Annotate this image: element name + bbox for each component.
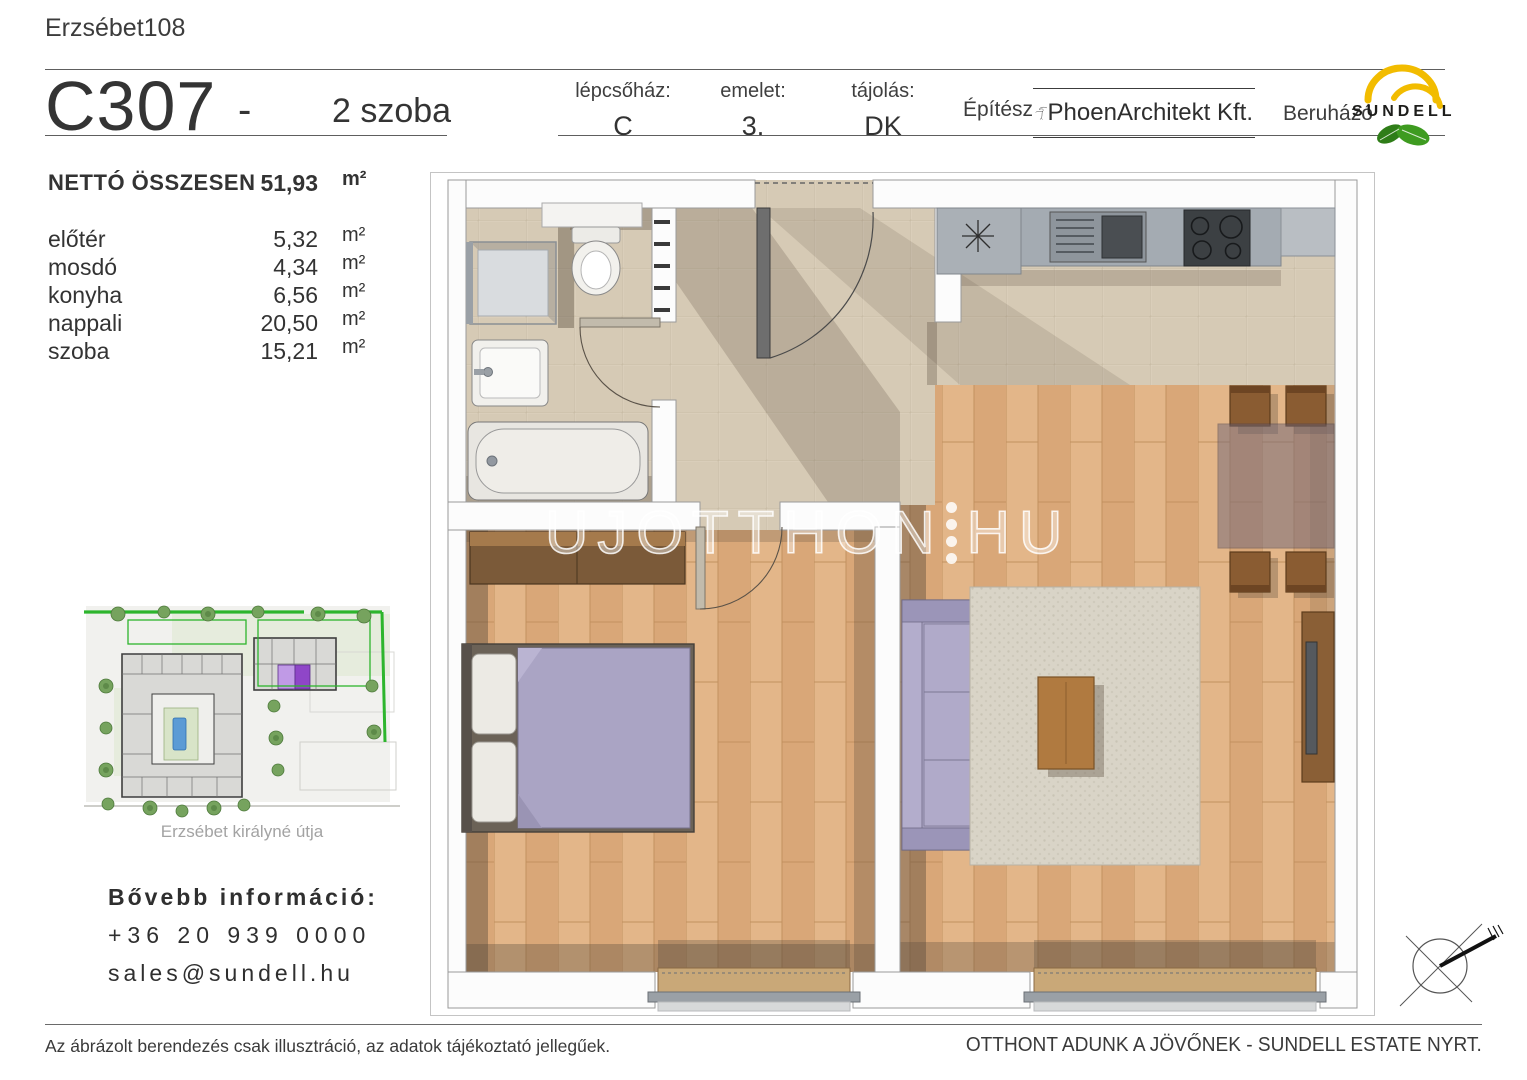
title-underline xyxy=(45,135,447,136)
phoenix-bird-icon xyxy=(1035,90,1048,136)
total-area-value: 51,93 xyxy=(180,170,318,197)
room-value: 6,56 xyxy=(180,282,318,309)
pillow xyxy=(472,742,516,822)
watermark-right: HU xyxy=(967,498,1072,567)
room-unit: m² xyxy=(342,308,365,331)
room-value: 4,34 xyxy=(180,254,318,281)
total-area-unit: m² xyxy=(342,168,366,191)
dining-table xyxy=(1218,424,1334,548)
disclaimer-text: Az ábrázolt berendezés csak illusztráció… xyxy=(45,1036,610,1057)
footer-slogan: OTTHONT ADUNK A JÖVŐNEK - SUNDELL ESTATE… xyxy=(966,1033,1482,1057)
staircase-label: lépcsőház: xyxy=(557,80,689,103)
field-staircase: lépcsőház: C xyxy=(557,80,689,142)
cooktop xyxy=(1184,210,1250,266)
room-unit: m² xyxy=(342,280,365,303)
orientation-value: DK xyxy=(817,111,949,142)
kitchen-counter xyxy=(937,208,1335,274)
kitchen-sink xyxy=(1102,216,1142,258)
floor-label: emelet: xyxy=(687,80,819,103)
unit-separator: - xyxy=(238,88,251,133)
developer-logo: SUNDELL xyxy=(1352,60,1452,152)
room-name: előtér xyxy=(48,226,106,253)
bedroom-window xyxy=(648,968,860,1011)
room-value: 15,21 xyxy=(180,338,318,365)
watermark-dots xyxy=(946,499,957,567)
room-value: 20,50 xyxy=(180,310,318,337)
room-name: szoba xyxy=(48,338,109,365)
contact-email: sales@sundell.hu xyxy=(108,960,354,987)
project-name: Erzsébet108 xyxy=(45,14,185,43)
room-unit: m² xyxy=(342,224,365,247)
room-value: 5,32 xyxy=(180,226,318,253)
architect-label: Építész xyxy=(963,98,1033,122)
staircase-value: C xyxy=(557,111,689,142)
room-name: nappali xyxy=(48,310,122,337)
footer-rule xyxy=(45,1024,1482,1025)
living-window xyxy=(1024,968,1326,1011)
entrance-door-leaf xyxy=(757,208,770,358)
orientation-label: tájolás: xyxy=(817,80,949,103)
contact-phone: +36 20 939 0000 xyxy=(108,922,371,949)
room-name: konyha xyxy=(48,282,122,309)
tv-console xyxy=(1302,612,1334,782)
street-name: Erzsébet királyné útja xyxy=(72,822,412,842)
bed xyxy=(462,644,694,832)
site-plan-minimap xyxy=(72,592,412,820)
unit-room-count: 2 szoba xyxy=(332,92,451,131)
room-unit: m² xyxy=(342,336,365,359)
dining-set xyxy=(1218,386,1334,598)
room-name: mosdó xyxy=(48,254,117,281)
watermark-left: UJOTTHON xyxy=(545,498,944,567)
architect-logo-box: PhoenArchitekt Kft. xyxy=(1033,88,1255,138)
field-floor: emelet: 3. xyxy=(687,80,819,142)
contact-heading: Bővebb információ: xyxy=(108,884,378,911)
floor-plan xyxy=(430,172,1375,1016)
compass-icon xyxy=(1392,918,1512,1018)
hob-symbol xyxy=(962,220,994,252)
bathroom-door-leaf xyxy=(580,318,660,327)
architect-name: PhoenArchitekt Kft. xyxy=(1048,99,1253,127)
field-orientation: tájolás: DK xyxy=(817,80,949,142)
developer-name: SUNDELL xyxy=(1352,103,1452,121)
header-top-rule xyxy=(45,69,1445,70)
room-unit: m² xyxy=(342,252,365,275)
tv xyxy=(1306,642,1317,754)
unit-code: C307 xyxy=(45,66,216,146)
watermark: UJOTTHON HU xyxy=(545,498,1071,567)
pillow xyxy=(472,654,516,734)
floor-value: 3. xyxy=(687,111,819,142)
